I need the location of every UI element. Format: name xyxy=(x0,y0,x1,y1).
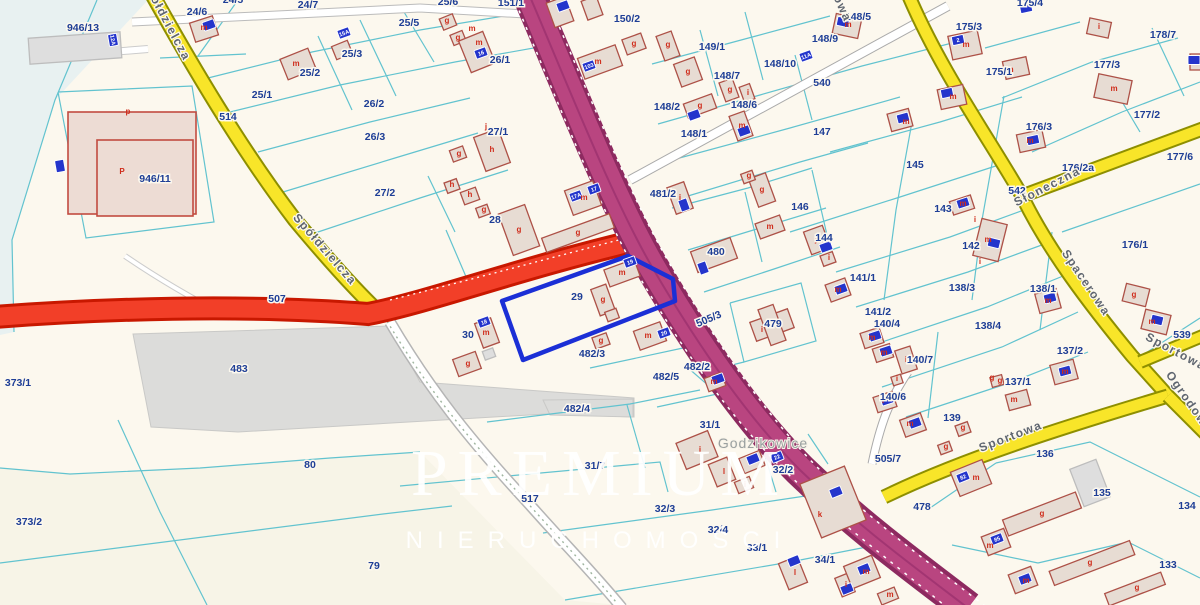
building-function-letter: m xyxy=(710,377,717,386)
building-function-letter: g xyxy=(1132,290,1137,299)
parcel-number-label: 32/4 xyxy=(708,524,729,536)
building-function-letter: m xyxy=(1026,136,1033,145)
parcel-number-label: 25/2 xyxy=(300,67,321,79)
building-function-letter: m xyxy=(959,199,966,208)
parcel-number-label: 147 xyxy=(813,126,831,138)
building-function-letter: k xyxy=(818,510,823,519)
building-function-letter: g xyxy=(482,205,487,214)
building-function-letter: m xyxy=(468,24,475,33)
parcel-number-label: 138/3 xyxy=(949,282,975,294)
parcel-number-label: 140/6 xyxy=(880,391,906,403)
parcel-number-label: 144 xyxy=(815,232,833,244)
building-function-letter: i xyxy=(747,88,749,97)
parcel-number-label: 140/4 xyxy=(874,318,900,330)
parcel-number-label: 481/2 xyxy=(650,188,676,200)
parcel-number-label: 507 xyxy=(268,293,286,305)
building-function-letter: m xyxy=(738,121,745,130)
parcel-number-label: 175/4 xyxy=(1017,0,1043,9)
parcel-number-label: 373/1 xyxy=(5,377,31,389)
parcel-number-label: 946/13 xyxy=(67,22,99,34)
building-function-letter: m xyxy=(482,328,489,337)
building-function-letter: m xyxy=(1022,576,1029,585)
building-function-letter: g xyxy=(517,225,522,234)
building-function-letter: i xyxy=(979,257,981,266)
building-function-letter: m xyxy=(1010,395,1017,404)
building-function-letter: g xyxy=(698,101,703,110)
building-function-letter: g xyxy=(1040,509,1045,518)
parcel-number-label: 175/1 xyxy=(986,66,1012,78)
building-function-letter: i xyxy=(744,480,746,489)
building-function-letter: m xyxy=(886,590,893,599)
parcel-number-label: 28 xyxy=(489,214,501,226)
parcel-number-label: 80 xyxy=(304,459,316,471)
parcel-number-label: 25/1 xyxy=(252,89,273,101)
parcel-number-label: 145 xyxy=(906,159,924,171)
building-function-letter: g xyxy=(632,39,637,48)
parcel-number-label: 136 xyxy=(1036,448,1054,460)
building-function-letter: m xyxy=(972,473,979,482)
building-function-letter: h xyxy=(468,190,473,199)
building-function-letter: i xyxy=(974,215,976,224)
parcel-number-label: 139 xyxy=(943,412,961,424)
building-function-letter: m xyxy=(834,285,841,294)
parcel-number-label: 177/3 xyxy=(1094,59,1120,71)
building-function-letter: m xyxy=(984,235,991,244)
building-function-letter: g xyxy=(466,359,471,368)
parcel-number-label: 32/2 xyxy=(773,464,794,476)
parcel-number-label: 373/2 xyxy=(16,516,42,528)
building-function-letter: g xyxy=(457,149,462,158)
parcel-number-label: 148/1 xyxy=(681,128,707,140)
building-function-letter: i xyxy=(896,374,898,383)
building-function-letter: h xyxy=(450,180,455,189)
building-function-letter: i xyxy=(679,193,681,202)
parcel-number-label: 134 xyxy=(1178,500,1196,512)
building-function-letter: g xyxy=(456,33,461,42)
parcel-number-label: 138/4 xyxy=(975,320,1001,332)
parcel-number-label: 141/2 xyxy=(865,306,891,318)
building-function-letter: m xyxy=(644,331,651,340)
parcel-number-label: 25/6 xyxy=(438,0,459,8)
building-function-letter: i xyxy=(699,445,701,454)
building-function-letter: m xyxy=(962,40,969,49)
building-function-letter: g xyxy=(728,85,733,94)
parcel-number-label: 33/1 xyxy=(747,542,768,554)
parcel-number-label: 31/1 xyxy=(700,419,721,431)
building-function-letter: g xyxy=(576,228,581,237)
parcel-number-label: 482/4 xyxy=(564,403,590,415)
building-function-letter: m xyxy=(594,57,601,66)
building-function-letter: g xyxy=(760,185,765,194)
parcel-number-label: 25/3 xyxy=(342,48,363,60)
building-function-letter: g xyxy=(747,171,752,180)
parcel-number-label: 146 xyxy=(791,201,809,213)
address-plate xyxy=(55,159,66,172)
parcel-number-label: 176/3 xyxy=(1026,121,1052,133)
parcel-number-label: 25/5 xyxy=(399,17,420,29)
building-function-letter: m xyxy=(580,193,587,202)
building-function-letter: g xyxy=(445,16,450,25)
address-plate-box xyxy=(1188,56,1200,65)
parcel-number-label: 141/1 xyxy=(850,272,876,284)
parcel-number-label: 140/7 xyxy=(907,354,933,366)
place-name-label: Godzikowice xyxy=(718,435,808,451)
parcel-number-label: 27/1 xyxy=(488,126,509,138)
building-function-letter: m xyxy=(862,567,869,576)
parcel-number-label: 133 xyxy=(1159,559,1177,571)
parcel-number-label: 175/3 xyxy=(956,21,982,33)
building-function-letter: g xyxy=(601,295,606,304)
building-function-letter: l xyxy=(794,568,796,577)
parcel-number-label: 151/1 xyxy=(498,0,524,9)
building-function-letter: m xyxy=(868,333,875,342)
parcel-number-label: 178/7 xyxy=(1150,29,1176,41)
parcel-number-label: 505/7 xyxy=(875,453,901,465)
parcel-number-label: 137/1 xyxy=(1005,376,1031,388)
parcel-number-label: 24/7 xyxy=(298,0,319,11)
building-function-letter: g xyxy=(990,373,995,382)
parcel-number-label: 482/3 xyxy=(579,348,605,360)
address-plate xyxy=(1188,56,1200,65)
building-function-letter: m xyxy=(1044,296,1051,305)
parcel-number-label: 148/9 xyxy=(812,33,838,45)
parcel-number-label: 148/6 xyxy=(731,99,757,111)
map-canvas[interactable]: 12A15A1610311A282852217A17192018 pPmmggm… xyxy=(0,0,1200,605)
building-function-letter: g xyxy=(944,442,949,451)
parcel-number-label: 478 xyxy=(913,501,931,513)
building-function-letter: m xyxy=(880,348,887,357)
parcel-number-label: 540 xyxy=(813,77,831,89)
parcel-number-label: 148/7 xyxy=(714,70,740,82)
parcel-number-label: 138/1 xyxy=(1030,283,1056,295)
building-function-letter: m xyxy=(766,222,773,231)
parcel-number-label: 135 xyxy=(1093,487,1111,499)
building-function-letter: l xyxy=(723,467,725,476)
parcel-number-label: 517 xyxy=(521,493,539,505)
parcel-number-label: 177/6 xyxy=(1167,151,1193,163)
parcel-number-label: 27/2 xyxy=(375,187,396,199)
parcel-number-label: 26/3 xyxy=(365,131,386,143)
cadastral-map[interactable]: 12A15A1610311A282852217A17192018 pPmmggm… xyxy=(0,0,1200,605)
building-function-letter: m xyxy=(1061,367,1068,376)
parcel-number-label: 79 xyxy=(368,560,380,572)
parcel-number-label: 539 xyxy=(1173,329,1191,341)
parcel-number-label: 946/11 xyxy=(139,173,171,185)
parcel-number-label: 137/2 xyxy=(1057,345,1083,357)
building-function-letter: i xyxy=(845,580,847,589)
parcel-number-label: 514 xyxy=(219,111,237,123)
building-function-letter: i xyxy=(761,325,763,334)
parcel-number-label: 143 xyxy=(934,203,952,215)
parcel-number-label: 479 xyxy=(764,318,782,330)
parcel-number-label: 480 xyxy=(707,246,725,258)
building-function-letter: m xyxy=(618,268,625,277)
parcel-number-label: 142 xyxy=(962,240,980,252)
parcel-number-label: 24/6 xyxy=(187,6,208,18)
parcel-number-label: 34/1 xyxy=(815,554,836,566)
building-function-letter: m xyxy=(949,92,956,101)
building-function-letter: j xyxy=(484,122,487,131)
building-function-letter: g xyxy=(998,376,1003,385)
parcel-number-label: 26/1 xyxy=(490,54,511,66)
parcel-number-label: 176/1 xyxy=(1122,239,1148,251)
building-function-letter: m xyxy=(1148,317,1155,326)
building-function-letter: g xyxy=(961,423,966,432)
building-function-letter: m xyxy=(200,23,207,32)
building-function-letter: m xyxy=(292,59,299,68)
building-function-letter: p xyxy=(126,107,131,116)
parcel-number-label: 26/2 xyxy=(364,98,385,110)
building-function-letter: g xyxy=(599,336,604,345)
parcel-number-label: 482/5 xyxy=(653,371,679,383)
parcel-number-label: 24/5 xyxy=(223,0,244,6)
parcel-number-label: 148/10 xyxy=(764,58,796,70)
parcel-number-label: 150/2 xyxy=(614,13,640,25)
building-function-letter: i xyxy=(1098,22,1100,31)
building-function-letter: m xyxy=(986,541,993,550)
building-function-letter: g xyxy=(666,40,671,49)
building-function-letter: g xyxy=(1088,558,1093,567)
parcel-number-label: 148/2 xyxy=(654,101,680,113)
parcel-number-label: 32/3 xyxy=(655,503,676,515)
parcel-number-label: 177/2 xyxy=(1134,109,1160,121)
parcel-number-label: 483 xyxy=(230,363,248,375)
building-function-letter: h xyxy=(490,145,495,154)
building-function-letter: m xyxy=(1110,84,1117,93)
building-function-letter: g xyxy=(686,67,691,76)
building-function-letter: P xyxy=(119,167,125,176)
parcel-number-label: 482/2 xyxy=(684,361,710,373)
building-function-letter: m xyxy=(906,419,913,428)
building-function-letter: m xyxy=(475,38,482,47)
parcel-number-label: 31/7 xyxy=(585,460,606,472)
building-function-letter: m xyxy=(902,117,909,126)
address-plate: 12A xyxy=(108,33,119,46)
address-plate-box xyxy=(55,159,66,172)
building-function-letter: i xyxy=(828,253,830,262)
parcel-number-label: 30 xyxy=(462,329,474,341)
parcel-number-label: 149/1 xyxy=(699,41,725,53)
parcel-number-label: 29 xyxy=(571,291,583,303)
building-function-letter: g xyxy=(1135,583,1140,592)
